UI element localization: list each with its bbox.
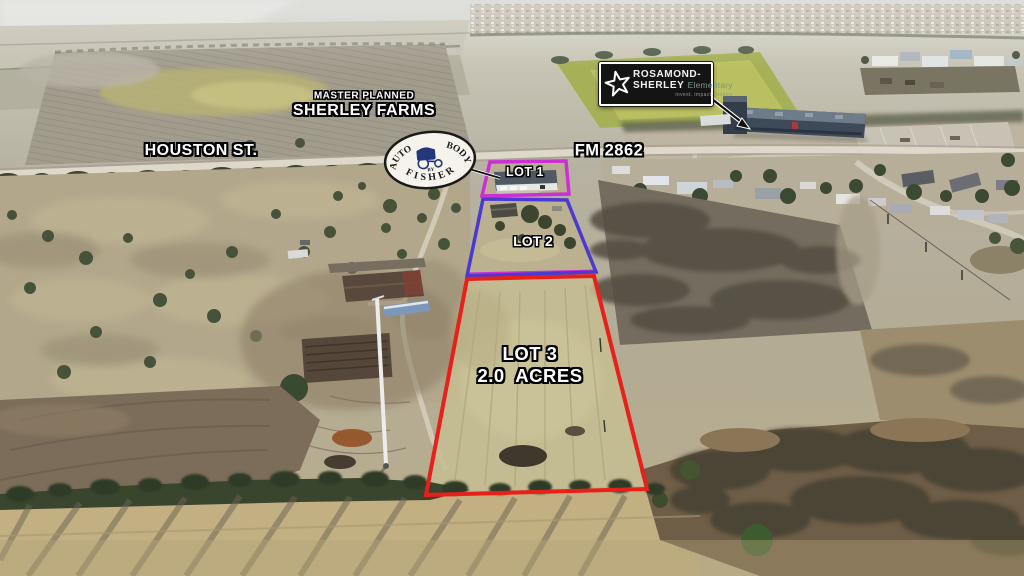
school-name-suffix: Elementary <box>688 80 733 90</box>
aerial-photo-canvas: AUTO BODY BY FISHER <box>0 0 1024 576</box>
aerial-photo: AUTO BODY BY FISHER MASTER PLANNED SHERL… <box>0 0 1024 576</box>
label-lot3-acres: 2.0 ACRES <box>477 365 582 387</box>
school-sign: ROSAMOND- SHERLEY Elementary invest. imp… <box>599 62 713 106</box>
label-lot1: LOT 1 <box>506 165 544 179</box>
school-name-line2: SHERLEY Elementary <box>633 81 733 92</box>
school-sign-text: ROSAMOND- SHERLEY Elementary invest. imp… <box>633 70 733 98</box>
label-master-planned: MASTER PLANNED <box>314 91 414 102</box>
label-lot2: LOT 2 <box>513 233 553 249</box>
school-sign-tagline: invest. impact. inspire <box>633 93 733 98</box>
label-houston-st: HOUSTON ST. <box>145 142 258 160</box>
label-sherley-farms: SHERLEY FARMS <box>293 102 435 120</box>
star-icon <box>603 67 633 101</box>
label-fm-2862: FM 2862 <box>575 142 644 161</box>
label-lot3: LOT 3 <box>503 343 558 365</box>
